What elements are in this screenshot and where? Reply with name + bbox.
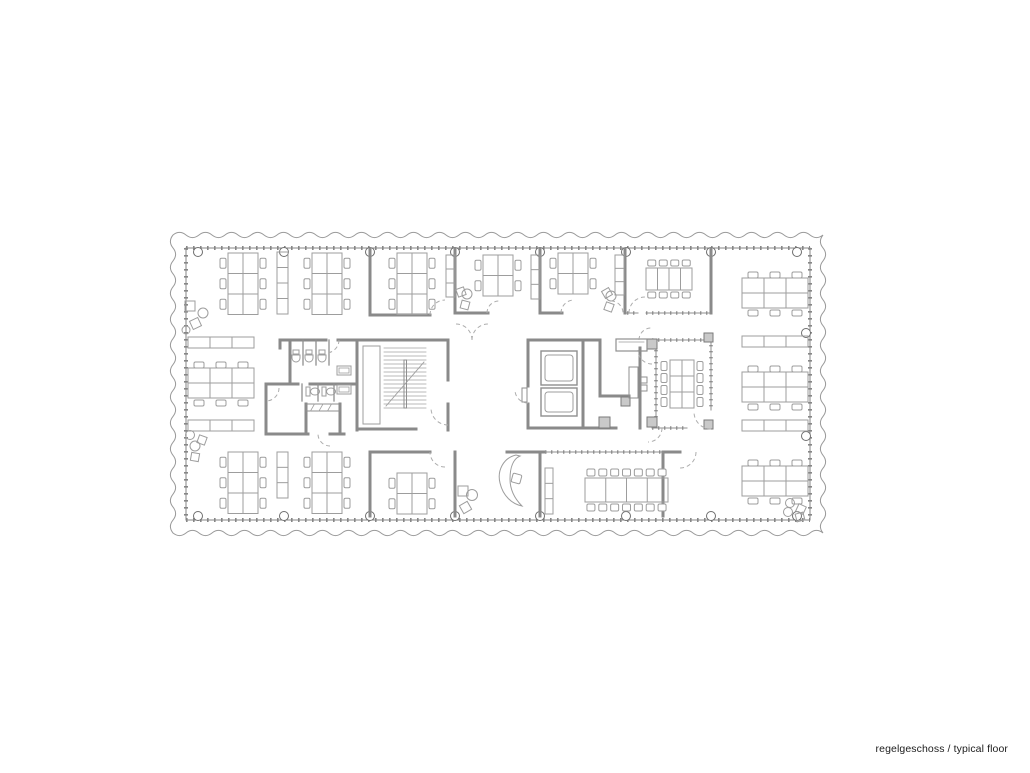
lounge-group (602, 288, 616, 313)
desk-cluster (550, 253, 596, 294)
desk-cluster (742, 272, 808, 316)
floor-plan-drawing: regelgeschoss / typical floor (0, 0, 1030, 773)
core-stair-elevators (363, 339, 647, 424)
desk-cluster (188, 362, 254, 406)
desk-cluster (389, 253, 435, 315)
lounge-group (186, 431, 208, 462)
desk-cluster (304, 452, 350, 514)
desk-cluster (742, 366, 808, 410)
shelf (742, 420, 808, 431)
plan-caption: regelgeschoss / typical floor (876, 743, 1009, 755)
curved-reception-desk (499, 455, 522, 506)
toilet-fixtures (292, 340, 351, 411)
shelf (188, 337, 254, 348)
desk-cluster (475, 255, 521, 296)
meeting-table (646, 260, 692, 298)
desk-cluster (742, 460, 808, 504)
shelf (277, 252, 288, 314)
conference-table (585, 469, 668, 511)
shelf (545, 468, 553, 514)
lounge-furniture (182, 287, 806, 522)
desk-cluster (389, 473, 435, 514)
lounge-group (458, 486, 478, 514)
meeting-table (661, 360, 703, 408)
desk-cluster (220, 452, 266, 514)
desk-cluster (304, 253, 350, 315)
shelf (615, 255, 624, 295)
shelf (742, 336, 808, 347)
shelf (277, 452, 288, 498)
floor-plan-page: regelgeschoss / typical floor (0, 0, 1030, 773)
desk-cluster (220, 253, 266, 315)
lounge-group (456, 287, 472, 310)
shelf (188, 420, 254, 431)
